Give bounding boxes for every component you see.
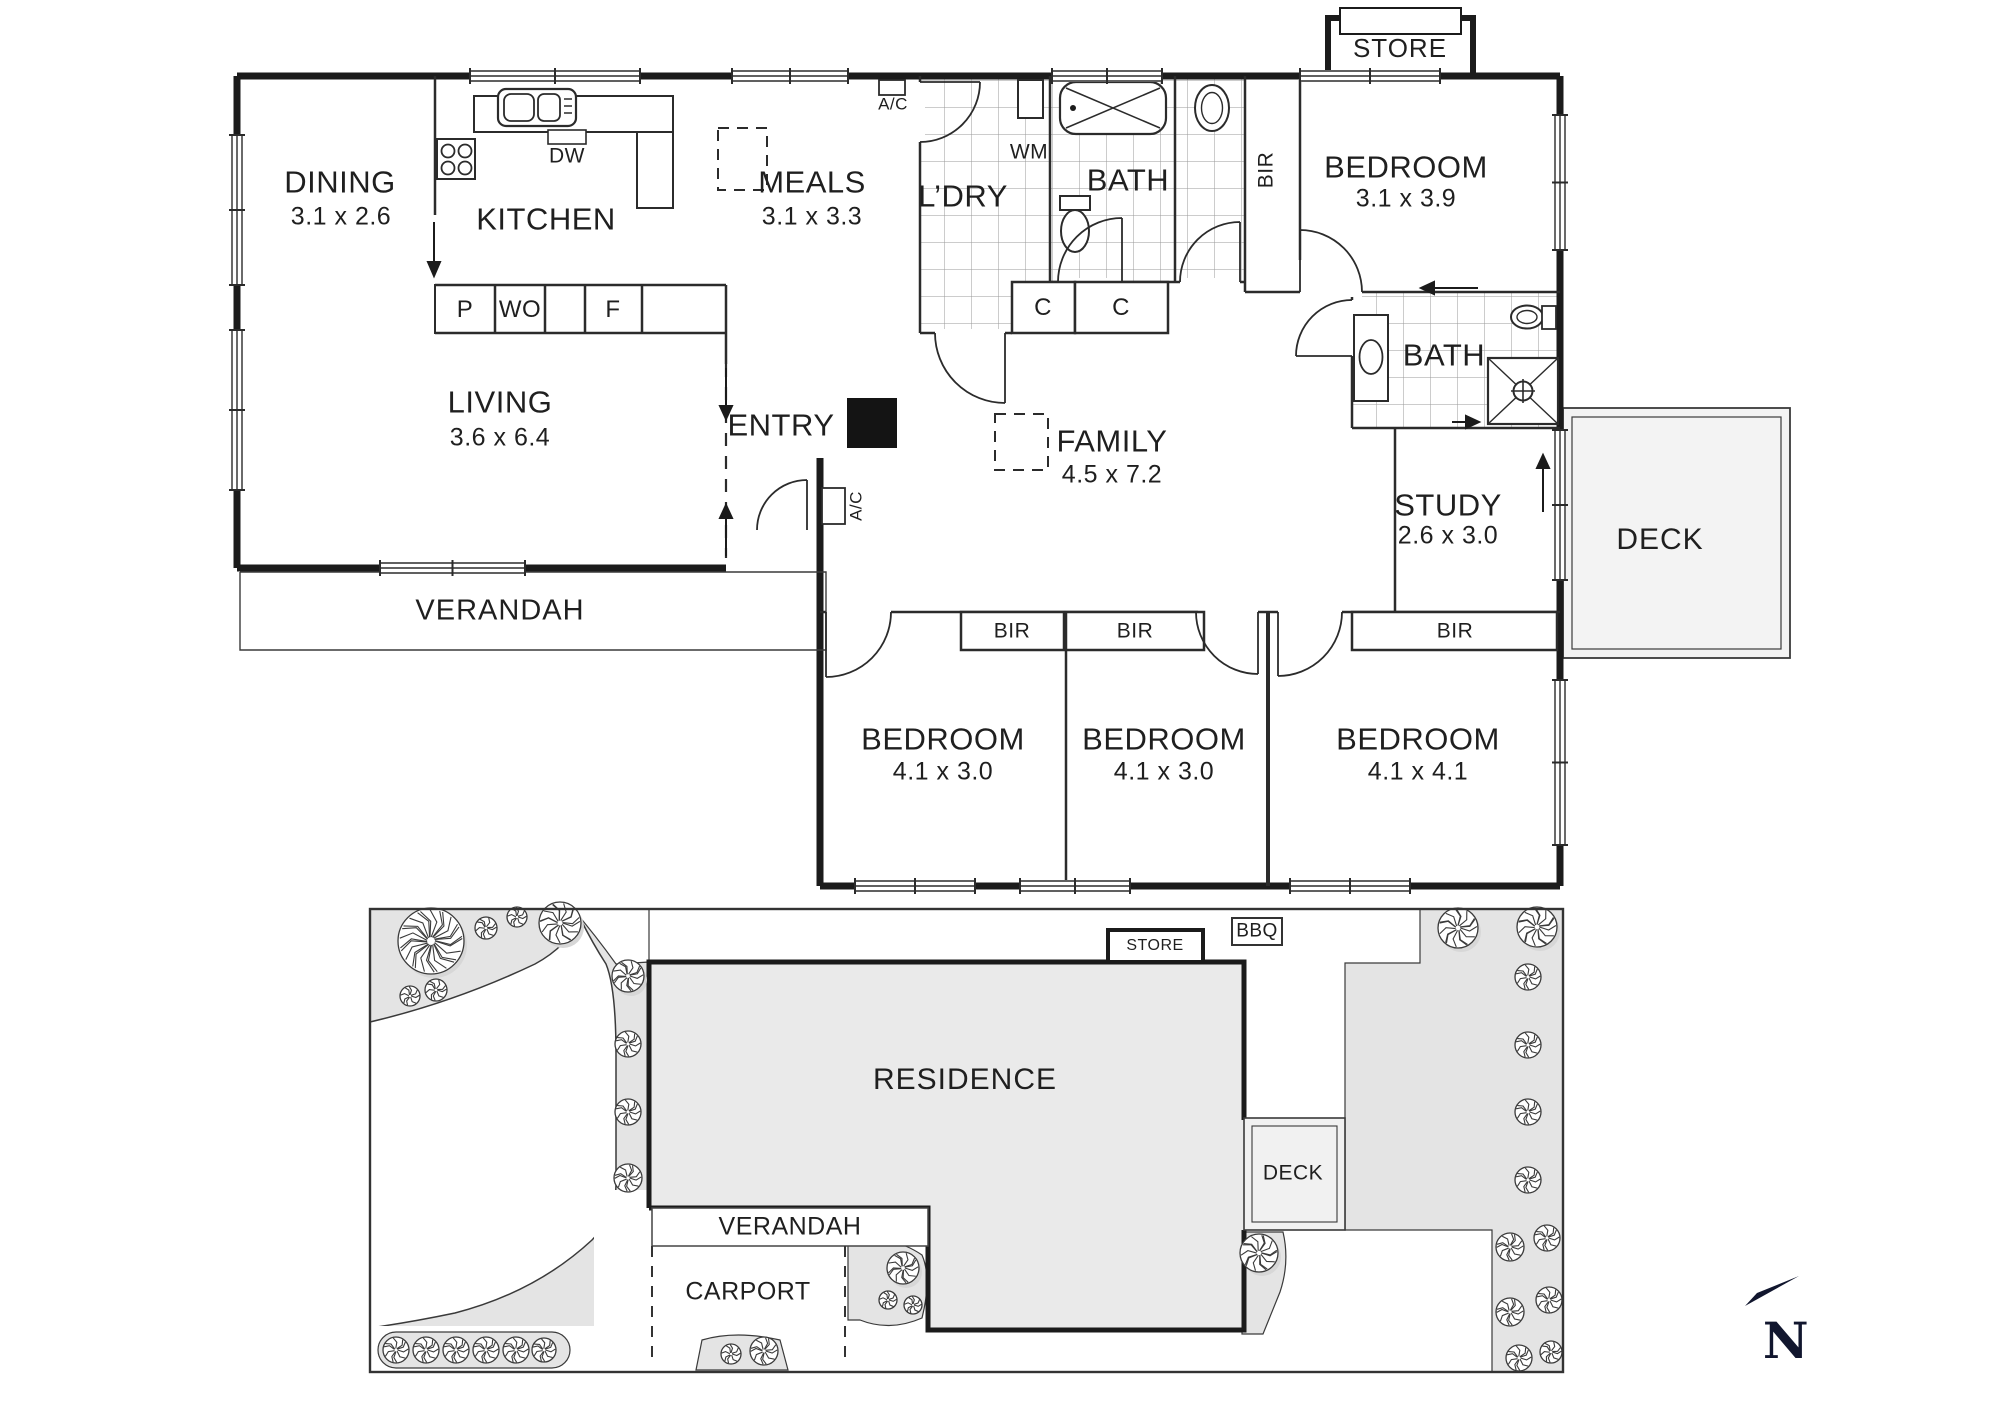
bir-label-vertical: BIR [1256,152,1277,189]
washing-machine-label: WM [1010,142,1048,163]
room-label-laundry: L’DRY [918,181,1008,212]
room-label-entry: ENTRY [727,410,834,441]
bir-label-1: BIR [994,621,1031,642]
deck-label-floorplan: DECK [1616,525,1703,555]
room-label-dining: DINING [284,167,396,198]
room-label-bedroom-2: BEDROOM [1082,724,1246,755]
room-dims-family: 4.5 x 7.2 [1062,463,1162,488]
closet-label-2: C [1112,296,1130,320]
deck-label-site: DECK [1263,1163,1323,1184]
pantry-label: P [457,298,474,322]
site-plan [370,902,1563,1372]
north-letter: N [1763,1316,1809,1366]
room-dims-bedroom-3: 4.1 x 4.1 [1368,760,1468,785]
room-label-meals: MEALS [758,167,866,198]
carport-label: CARPORT [685,1280,810,1305]
closet-label-1: C [1034,296,1052,320]
room-label-bedroom-tr: BEDROOM [1324,152,1488,183]
room-dims-bedroom-1: 4.1 x 3.0 [893,760,993,785]
room-label-bedroom-1: BEDROOM [861,724,1025,755]
room-label-family: FAMILY [1057,426,1168,457]
verandah-label-site: VERANDAH [719,1215,862,1240]
room-label-bedroom-3: BEDROOM [1336,724,1500,755]
ac-label-top: A/C [878,96,908,113]
room-label-bath-2: BATH [1403,340,1485,371]
bir-label-3: BIR [1437,621,1474,642]
floorplan-page: DINING 3.1 x 2.6 KITCHEN MEALS 3.1 x 3.3… [0,0,2000,1413]
residence-label: RESIDENCE [873,1065,1057,1095]
north-arrow-icon [1745,1276,1799,1306]
room-dims-study: 2.6 x 3.0 [1398,524,1498,549]
fridge-label: F [605,298,620,322]
room-label-living: LIVING [448,387,553,418]
ac-label-entry: A/C [848,491,865,521]
room-label-study: STUDY [1394,490,1502,521]
room-dims-living: 3.6 x 6.4 [450,426,550,451]
bir-label-2: BIR [1117,621,1154,642]
room-dims-dining: 3.1 x 2.6 [291,205,391,230]
room-label-kitchen: KITCHEN [476,204,616,235]
room-label-bath-1: BATH [1087,165,1169,196]
wall-oven-label: WO [499,298,541,322]
store-label-site: STORE [1126,938,1183,954]
store-label-floorplan: STORE [1353,35,1447,61]
dishwasher-label: DW [549,146,585,167]
bbq-label: BBQ [1236,922,1278,941]
room-dims-bedroom-tr: 3.1 x 3.9 [1356,187,1456,212]
verandah-label-floorplan: VERANDAH [415,597,584,626]
room-dims-bedroom-2: 4.1 x 3.0 [1114,760,1214,785]
room-dims-meals: 3.1 x 3.3 [762,205,862,230]
